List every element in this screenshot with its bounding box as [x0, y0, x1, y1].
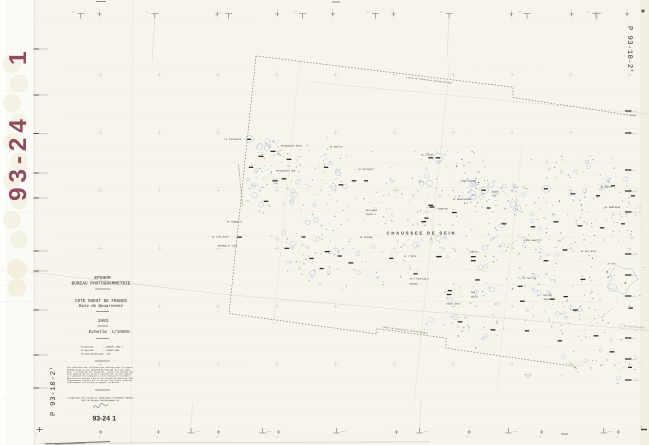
- svg-text:Morwazeale Nord: Morwazeale Nord: [281, 145, 302, 148]
- svg-text:pltr: pltr: [633, 295, 637, 298]
- svg-text:Hadored: Hadored: [438, 208, 448, 211]
- svg-text:ar Leue Braz: ar Leue Braz: [212, 236, 229, 239]
- svg-text:Kerlawaing: Kerlawaing: [462, 180, 476, 183]
- svg-text:0s: 0s: [482, 159, 484, 162]
- svg-text:3s: 3s: [306, 144, 308, 147]
- svg-text:Tabale: Tabale: [469, 251, 478, 254]
- svg-text:pltr: pltr: [633, 379, 637, 382]
- svg-text:COTE OUEST DE FRANCE: COTE OUEST DE FRANCE: [75, 298, 127, 304]
- svg-text:Men: Men: [471, 291, 476, 294]
- svg-text:Ar Eyrdl: Ar Eyrdl: [601, 186, 612, 189]
- svg-text:approch: approch: [594, 12, 603, 15]
- svg-text:2s: 2s: [561, 158, 563, 161]
- svg-text:pltr: pltr: [633, 169, 637, 172]
- svg-text:cm: cm: [616, 437, 618, 439]
- svg-text:2s: 2s: [252, 184, 254, 187]
- svg-text:93-24: 93-24: [93, 416, 111, 423]
- svg-text:4: 4: [271, 171, 272, 174]
- svg-text:cm: cm: [216, 437, 218, 439]
- svg-text:Ar Pen'Teg: Ar Pen'Teg: [523, 277, 537, 280]
- svg-text:7: 7: [391, 254, 392, 257]
- svg-text:cm: cm: [98, 437, 100, 439]
- svg-text:Ar Krkadp: Ar Krkadp: [360, 236, 373, 239]
- svg-text:2s: 2s: [569, 176, 571, 179]
- svg-text:Echelle: Echelle: [89, 329, 107, 335]
- svg-text:Kermeg Ar Leue: Kermeg Ar Leue: [218, 245, 238, 248]
- svg-text:4: 4: [584, 329, 585, 332]
- svg-text:5s: 5s: [619, 213, 621, 216]
- svg-text:cm: cm: [467, 437, 469, 439]
- svg-text:1/10000: 1/10000: [112, 329, 130, 335]
- svg-text:Ar Nedfapan: Ar Nedfapan: [605, 206, 621, 209]
- svg-text:1993: 1993: [98, 318, 109, 324]
- svg-text:8: 8: [546, 201, 547, 204]
- svg-text:1: 1: [112, 416, 116, 423]
- svg-text:3s: 3s: [303, 262, 305, 265]
- svg-text:An Treydn: An Treydn: [421, 154, 434, 157]
- svg-text:P 93-10-2': P 93-10-2': [625, 26, 634, 73]
- svg-text:1: 1: [5, 51, 32, 65]
- svg-text:2s: 2s: [539, 258, 541, 261]
- svg-text:Ar Bouchennou: Ar Bouchennou: [453, 198, 471, 201]
- svg-text:Hurlagad: Hurlagad: [366, 209, 377, 212]
- svg-text:Pane Guach'h: Pane Guach'h: [525, 239, 542, 242]
- svg-text:2s: 2s: [494, 303, 496, 306]
- svg-text:La Tourmalne: La Tourmalne: [225, 138, 242, 141]
- svg-text:cm: cm: [539, 437, 541, 439]
- svg-text:Morwazeale Sud: Morwazeale Sud: [276, 170, 296, 173]
- svg-text:0s: 0s: [461, 330, 463, 333]
- svg-text:Ar Barrou: Ar Barrou: [330, 146, 343, 149]
- svg-text:Ar Pal: Ar Pal: [608, 263, 617, 266]
- svg-text:EPSHOM: EPSHOM: [94, 275, 111, 281]
- svg-text:Ar l'Hola: Ar l'Hola: [404, 255, 417, 258]
- svg-text:cm: cm: [276, 437, 278, 439]
- svg-text:Kernug: Kernug: [544, 294, 553, 297]
- svg-text:Vanarie: Vanarie: [544, 298, 554, 301]
- svg-text:3s: 3s: [342, 247, 344, 250]
- svg-text:Ar Vagadell: Ar Vagadell: [227, 221, 243, 224]
- svg-text:Far: Far: [493, 195, 498, 198]
- svg-text:Gwaien: Gwaien: [410, 283, 419, 286]
- svg-text:Ar Gurlag'h: Ar Gurlag'h: [359, 168, 375, 171]
- svg-text:(m): (m): [640, 426, 643, 429]
- svg-text:5s: 5s: [424, 224, 426, 227]
- svg-text:cm: cm: [394, 437, 396, 439]
- svg-text:cm: cm: [35, 434, 37, 436]
- svg-text:3s: 3s: [585, 336, 587, 339]
- svg-text:4: 4: [366, 260, 367, 263]
- svg-text:pltr: pltr: [633, 190, 637, 193]
- svg-text:pltr: pltr: [633, 358, 637, 361]
- svg-text:Ar C'hearing a: Ar C'hearing a: [410, 278, 430, 281]
- svg-text:pltr: pltr: [633, 211, 637, 214]
- svg-text:2s: 2s: [606, 359, 608, 362]
- svg-text:4: 4: [381, 251, 382, 254]
- svg-text:cm: cm: [156, 437, 158, 439]
- svg-text:5s: 5s: [623, 367, 625, 370]
- svg-text:Ar Fol Braz: Ar Fol Braz: [581, 250, 597, 253]
- svg-text:P 93-10-2': P 93-10-2': [49, 366, 58, 416]
- svg-text:pltr: pltr: [633, 337, 637, 340]
- svg-text:Traou: Traou: [492, 191, 499, 194]
- svg-text:BUREAU PHOTOGRAMMETRIE: BUREAU PHOTOGRAMMETRIE: [72, 280, 131, 286]
- svg-text:a: a: [614, 274, 615, 277]
- svg-text:conformement aux normes en vig: conformement aux normes en vigueur au Bu…: [67, 381, 120, 384]
- svg-text:3s: 3s: [524, 187, 526, 190]
- svg-text:5s: 5s: [543, 217, 545, 220]
- svg-text:Gabal Skun: Gabal Skun: [447, 303, 461, 306]
- svg-text:3s: 3s: [342, 209, 344, 212]
- svg-text:Systeme geodesique : NTF: Systeme geodesique : NTF: [81, 352, 112, 355]
- svg-text:Polen A: Polen A: [366, 213, 376, 216]
- svg-text:7: 7: [588, 211, 589, 214]
- svg-text:Harld: Harld: [471, 296, 478, 299]
- svg-text:pltr: pltr: [633, 253, 637, 256]
- svg-text:1s: 1s: [512, 182, 514, 185]
- svg-text:CHAUSSEE DE SEIN: CHAUSSEE DE SEIN: [387, 230, 455, 235]
- svg-text:5s: 5s: [265, 142, 267, 145]
- svg-text:7: 7: [626, 206, 627, 209]
- svg-text:pltr: pltr: [633, 132, 637, 135]
- svg-text:3s: 3s: [507, 246, 509, 249]
- svg-text:93-24: 93-24: [5, 114, 32, 201]
- svg-text:Chef du Bureau Photogrammetrie: Chef du Bureau Photogrammetrie: [81, 399, 120, 402]
